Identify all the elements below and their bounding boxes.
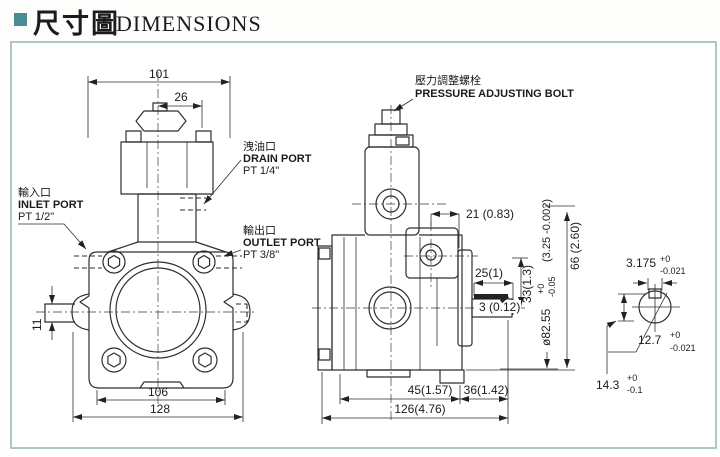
dim-pilot-tol-minus: -0.05 bbox=[547, 276, 557, 297]
inlet-port-label-cjk: 輸入口 bbox=[18, 185, 51, 199]
dim-shaft-dia: 12.7 bbox=[638, 333, 662, 347]
drain-port-thread: PT 1/4" bbox=[243, 165, 279, 177]
dim-3: 3 (0.12) bbox=[479, 300, 520, 314]
outlet-port-thread: PT 3/8" bbox=[243, 249, 279, 261]
dim-101: 101 bbox=[149, 67, 169, 81]
dim-26: 26 bbox=[174, 90, 188, 104]
drain-port-label-cjk: 洩油口 bbox=[243, 139, 276, 153]
dim-key-width-tol-plus: +0 bbox=[660, 254, 670, 264]
dim-25: 25(1) bbox=[475, 266, 503, 280]
dim-key-width-tol-minus: -0.021 bbox=[660, 266, 686, 276]
inlet-port-thread: PT 1/2" bbox=[18, 211, 54, 223]
dim-pilot-tol-plus: +0 bbox=[536, 284, 546, 294]
dim-106: 106 bbox=[148, 385, 168, 399]
dim-pilot-dia: ø82.55 bbox=[539, 308, 553, 346]
dim-key-height-tol-minus: -0.1 bbox=[627, 385, 643, 395]
dim-33: 33(1.3) bbox=[520, 265, 534, 303]
dim-126: 126(4.76) bbox=[394, 402, 445, 416]
dim-21: 21 (0.83) bbox=[466, 207, 514, 221]
dim-36: 36(1.42) bbox=[464, 383, 509, 397]
side-shaft-key bbox=[474, 294, 508, 299]
dim-11: 11 bbox=[30, 318, 44, 331]
dim-shaft-dia-tol-plus: +0 bbox=[670, 330, 680, 340]
dim-key-width: 3.175 bbox=[626, 256, 656, 270]
page-title-en: DIMENSIONS bbox=[116, 11, 262, 36]
outlet-port-label-en: OUTLET PORT bbox=[243, 237, 321, 249]
dimension-drawing: 尺寸圖 DIMENSIONS bbox=[0, 0, 720, 457]
dim-key-height-tol-plus: +0 bbox=[627, 373, 637, 383]
catalog-dimension-page: 尺寸圖 DIMENSIONS bbox=[0, 0, 720, 457]
pressure-bolt-label-cjk: 壓力調整螺栓 bbox=[415, 73, 481, 87]
inlet-port-label-en: INLET PORT bbox=[18, 199, 84, 211]
dim-128: 128 bbox=[150, 402, 170, 416]
dim-shaft-dia-tol-minus: -0.021 bbox=[670, 343, 696, 353]
outlet-port-label-cjk: 輸出口 bbox=[243, 223, 276, 237]
drain-port-label-en: DRAIN PORT bbox=[243, 153, 312, 165]
dim-66: 66 (2.60) bbox=[568, 222, 582, 270]
page-title-cjk: 尺寸圖 bbox=[33, 9, 120, 39]
dim-pilot-inch: (3.25 -0.002) bbox=[541, 199, 553, 262]
page-header: 尺寸圖 DIMENSIONS bbox=[14, 9, 262, 39]
pressure-bolt-label-en: PRESSURE ADJUSTING BOLT bbox=[415, 88, 574, 100]
dim-key-height: 14.3 bbox=[596, 378, 620, 392]
dim-45: 45(1.57) bbox=[408, 383, 453, 397]
header-bullet-icon bbox=[14, 13, 27, 26]
